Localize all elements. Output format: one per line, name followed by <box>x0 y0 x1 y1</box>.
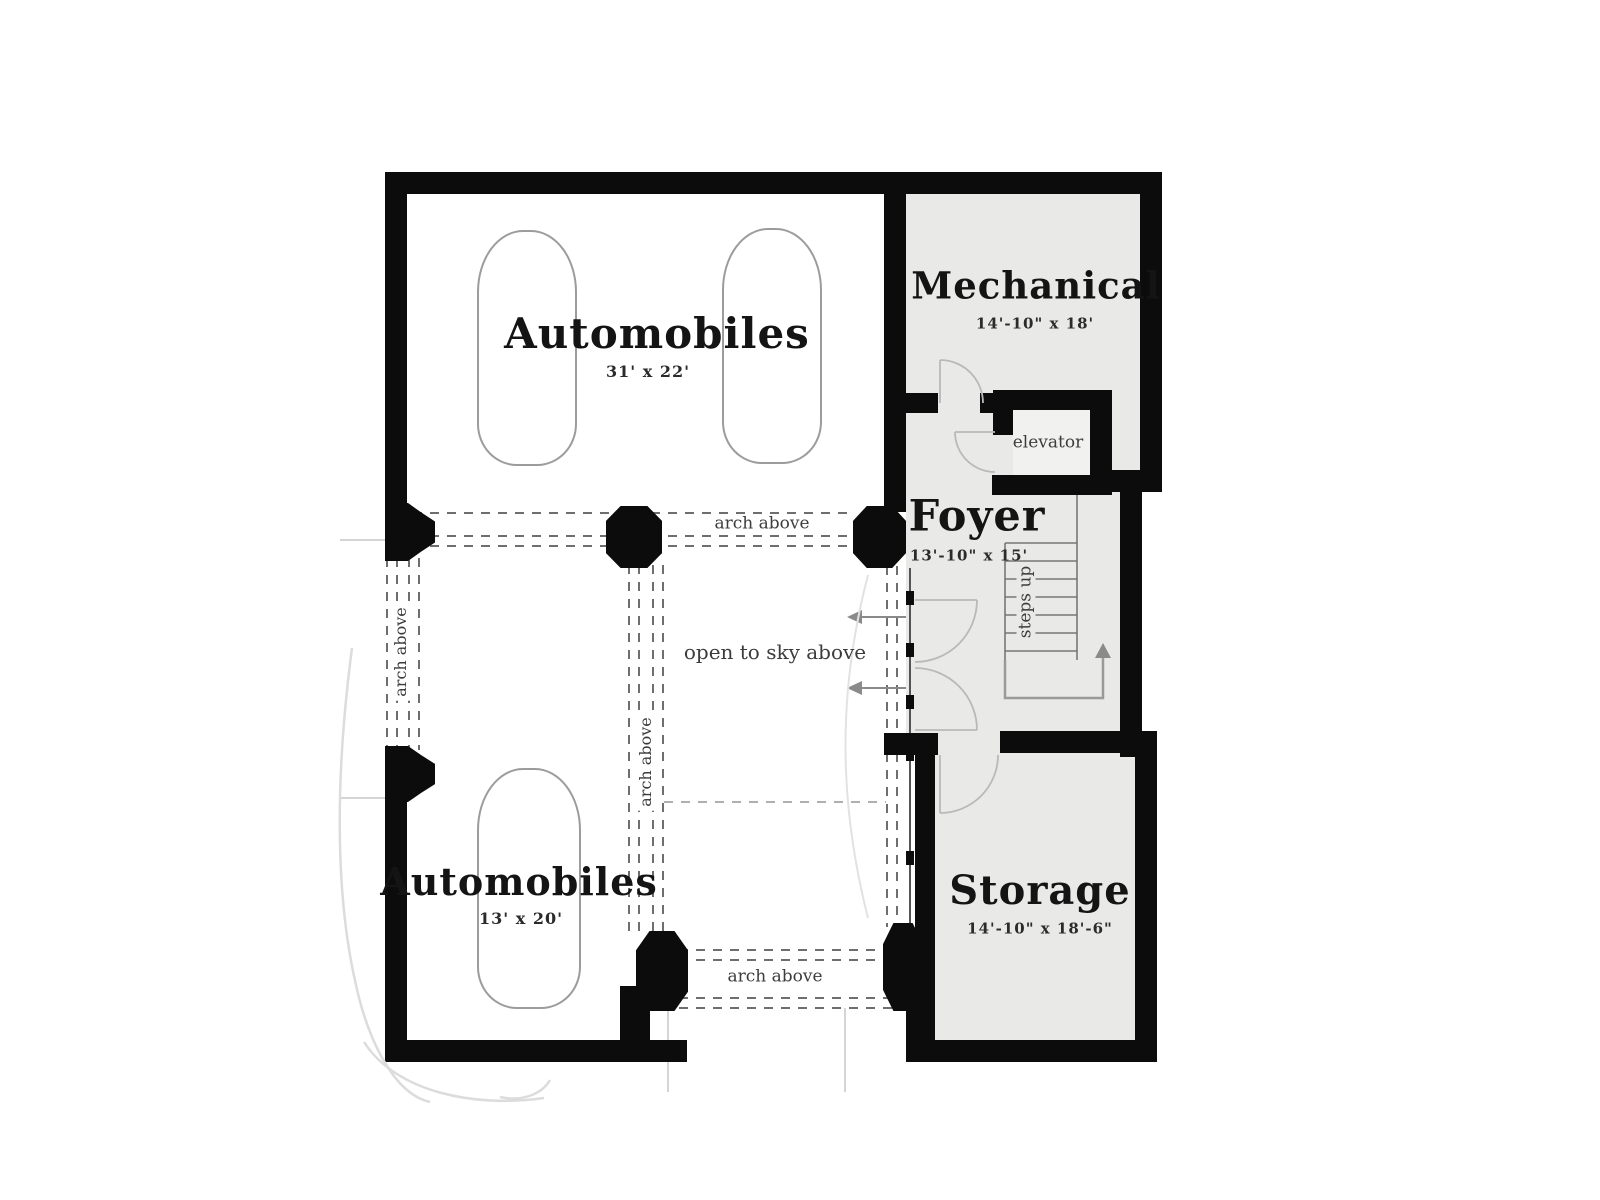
arch-dashed-line <box>418 558 420 750</box>
wall-storage-top <box>1000 731 1157 753</box>
arch-dashed-line <box>662 949 906 951</box>
room-label-garage-lower: Automobiles <box>380 863 658 901</box>
arch-dashed-line <box>662 959 906 961</box>
column-center-top <box>606 506 662 568</box>
window-mullion <box>906 643 914 657</box>
wall-foyer-south-stub <box>884 733 938 755</box>
arch-dashed-line <box>662 565 664 937</box>
arch-dashed-line <box>662 997 906 999</box>
window-mullion <box>906 851 914 865</box>
floor-plan-canvas: Automobiles 31' x 22' Mechanical 14'-10"… <box>0 0 1600 1200</box>
room-dims-garage-lower: 13' x 20' <box>479 911 563 927</box>
arch-dashed-line <box>386 558 388 750</box>
wall-top <box>385 172 1162 194</box>
floor-edge-dashed-line <box>664 801 886 803</box>
window-mullion <box>906 591 914 605</box>
wall-storage-bottom <box>908 1040 1157 1062</box>
column-window-top <box>853 506 906 568</box>
wall-garage-mechanical <box>884 172 906 512</box>
room-label-garage-upper: Automobiles <box>504 313 810 355</box>
wall-foyer-right <box>1120 470 1142 757</box>
room-label-foyer: Foyer <box>909 496 1046 539</box>
wall-left-upper <box>385 172 407 510</box>
room-label-storage: Storage <box>949 871 1130 911</box>
window-mullion <box>906 695 914 709</box>
wall-elevator-left <box>993 390 1013 435</box>
room-label-mechanical: Mechanical <box>911 268 1160 305</box>
steps-up-label: steps up <box>1017 562 1036 642</box>
room-dims-storage: 14'-10" x 18'-6" <box>967 922 1113 937</box>
storage-doorway-floor <box>938 733 1000 753</box>
column-left-bottom <box>385 746 435 802</box>
grade-line <box>340 797 385 799</box>
open-sky-label: open to sky above <box>684 642 866 662</box>
room-dims-garage-upper: 31' x 22' <box>606 364 690 380</box>
column-window-bottom <box>883 923 923 1011</box>
room-dims-mechanical: 14'-10" x 18' <box>976 317 1094 332</box>
large-door-arc <box>846 575 869 918</box>
wall-mechanical-right <box>1140 172 1162 492</box>
arch-above-label-left: arch above <box>392 603 410 700</box>
column-center-bottom <box>636 931 688 1011</box>
elevator-label: elevator <box>1013 435 1084 452</box>
wall-mech-south-west <box>906 393 938 413</box>
arch-above-label-top: arch above <box>714 516 809 533</box>
arch-dashed-line <box>662 1007 906 1009</box>
wall-bottom-left <box>385 1040 687 1062</box>
driveway-edge-line <box>844 1008 846 1092</box>
wall-storage-right <box>1135 731 1157 1062</box>
arch-above-label-bottom: arch above <box>727 969 822 986</box>
wall-left-lower <box>385 788 407 1062</box>
arch-above-label-center: arch above <box>637 713 655 810</box>
room-dims-foyer: 13'-10" x 15' <box>910 549 1028 564</box>
grade-line <box>340 539 385 541</box>
